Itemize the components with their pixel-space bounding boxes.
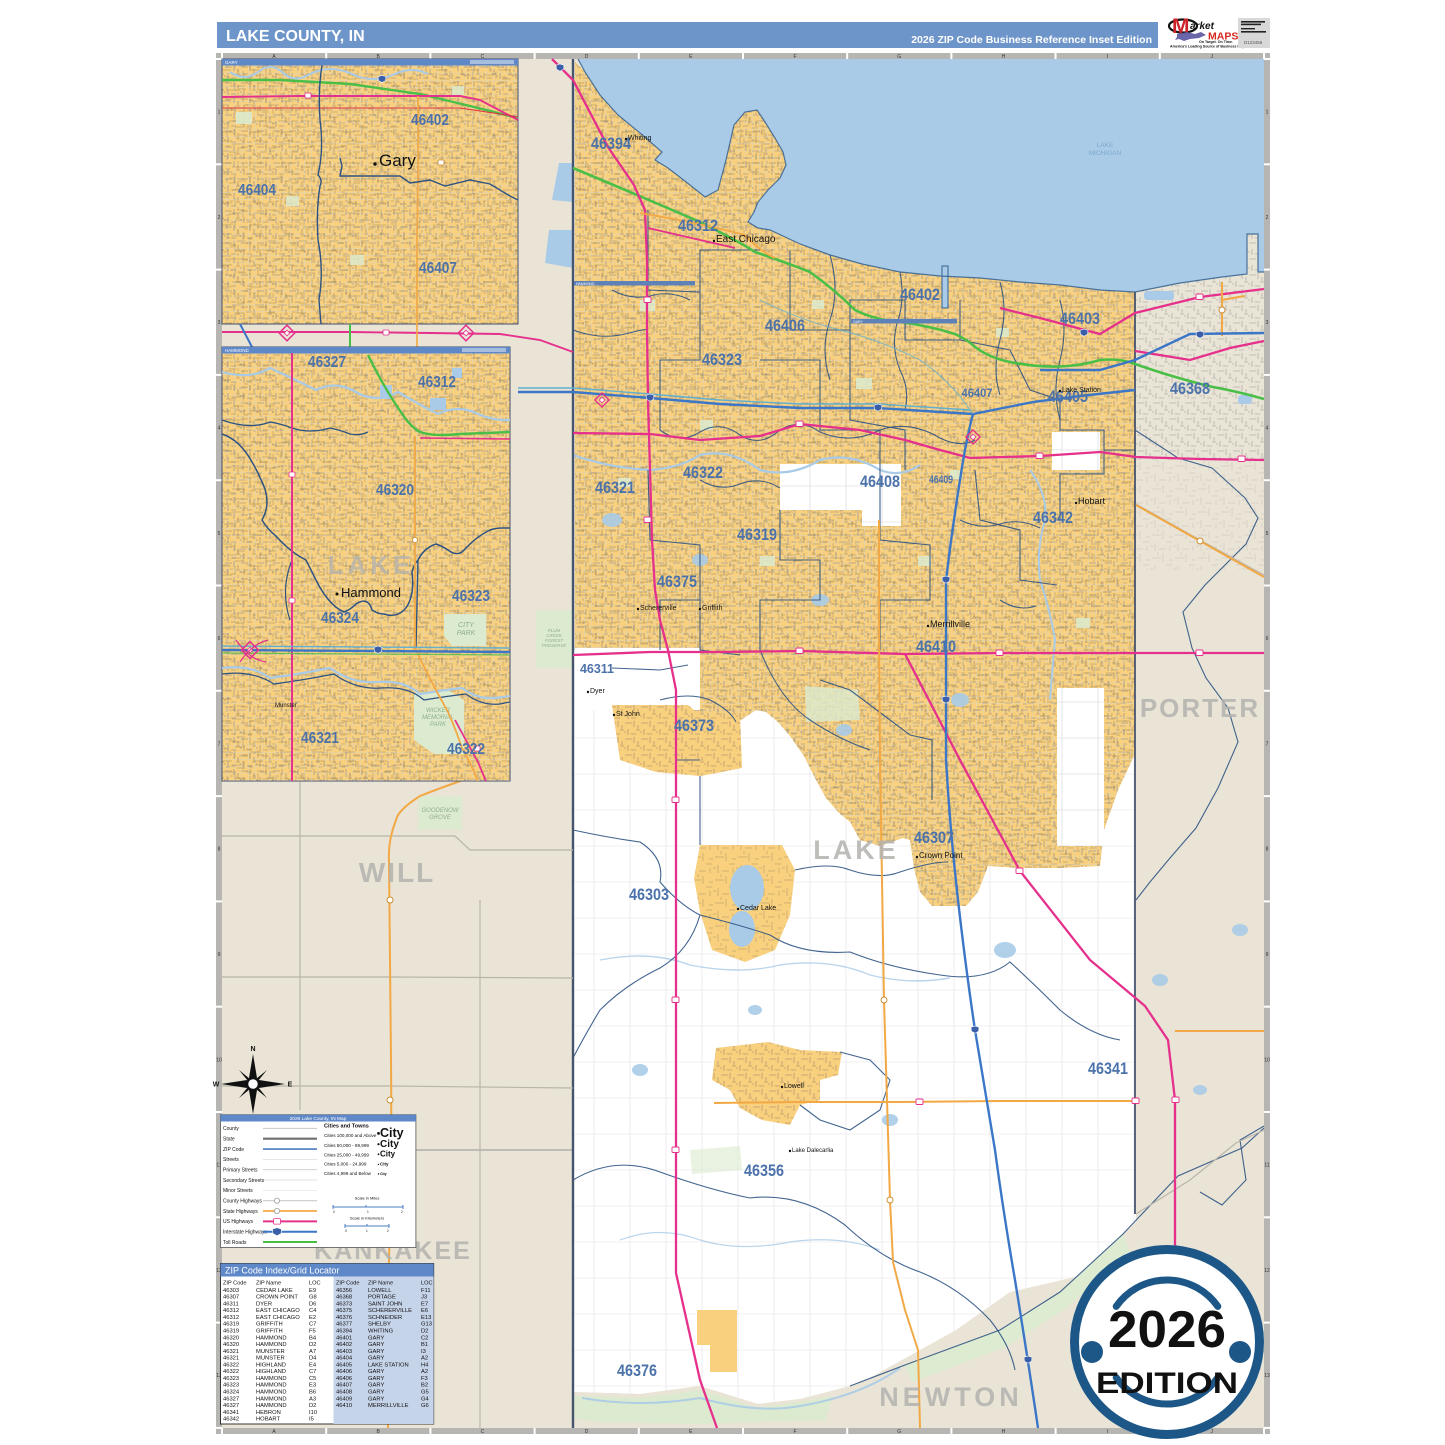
- svg-text:46377: 46377: [336, 1322, 352, 1328]
- svg-text:46320: 46320: [376, 482, 414, 499]
- svg-text:D6: D6: [309, 1301, 316, 1307]
- svg-text:46312: 46312: [223, 1315, 239, 1321]
- svg-text:Secondary Streets: Secondary Streets: [223, 1178, 265, 1184]
- svg-text:C2: C2: [421, 1335, 428, 1341]
- svg-text:46319: 46319: [737, 525, 777, 544]
- svg-text:46323: 46323: [452, 588, 490, 605]
- svg-text:City: City: [380, 1150, 396, 1159]
- svg-text:C4: C4: [309, 1308, 317, 1314]
- svg-text:Interstate Highways: Interstate Highways: [223, 1230, 267, 1236]
- svg-text:B1: B1: [421, 1342, 428, 1348]
- svg-text:City: City: [380, 1172, 387, 1176]
- svg-text:H4: H4: [421, 1362, 429, 1368]
- svg-text:12: 12: [1264, 1268, 1270, 1274]
- svg-text:1: 1: [218, 110, 221, 116]
- svg-text:2026 Lake County, IN Map: 2026 Lake County, IN Map: [290, 1116, 347, 1122]
- svg-text:LAKE STATION: LAKE STATION: [368, 1362, 409, 1368]
- svg-text:H: H: [1002, 54, 1006, 60]
- svg-text:46406: 46406: [336, 1369, 352, 1375]
- svg-text:D: D: [585, 1429, 589, 1435]
- svg-text:B2: B2: [421, 1383, 428, 1389]
- svg-text:I3: I3: [421, 1349, 426, 1355]
- svg-text:C7: C7: [309, 1369, 316, 1375]
- svg-text:46368: 46368: [336, 1295, 352, 1301]
- svg-text:1: 1: [367, 1210, 369, 1214]
- svg-text:2: 2: [401, 1210, 403, 1214]
- svg-text:WILL: WILL: [359, 857, 435, 888]
- svg-text:GARY: GARY: [225, 60, 238, 65]
- svg-text:2026 ZIP Code Business Referen: 2026 ZIP Code Business Reference Inset E…: [911, 34, 1152, 46]
- svg-text:GARY: GARY: [368, 1356, 384, 1362]
- svg-text:MICHIGAN: MICHIGAN: [1089, 150, 1122, 157]
- svg-text:46410: 46410: [916, 637, 956, 656]
- svg-text:America's Leading Source of Bu: America's Leading Source of Business Map…: [1170, 45, 1247, 49]
- svg-text:GARY: GARY: [368, 1390, 384, 1396]
- svg-text:46394: 46394: [336, 1329, 353, 1335]
- svg-text:46312: 46312: [223, 1308, 239, 1314]
- svg-text:LOC: LOC: [421, 1281, 433, 1287]
- svg-text:G13: G13: [421, 1322, 432, 1328]
- svg-text:E4: E4: [309, 1362, 317, 1368]
- svg-text:46324: 46324: [223, 1390, 240, 1396]
- svg-text:CEDAR LAKE: CEDAR LAKE: [256, 1288, 293, 1294]
- svg-text:US Highways: US Highways: [223, 1219, 254, 1225]
- svg-text:County: County: [223, 1126, 239, 1132]
- svg-text:City: City: [380, 1126, 404, 1140]
- svg-text:Lowell: Lowell: [784, 1083, 804, 1090]
- svg-text:On Target. On Time.: On Target. On Time.: [1199, 40, 1233, 44]
- svg-text:46327: 46327: [223, 1403, 239, 1409]
- svg-text:46394: 46394: [591, 134, 631, 153]
- svg-text:HAMMOND: HAMMOND: [256, 1396, 287, 1402]
- svg-text:46406: 46406: [336, 1376, 352, 1382]
- svg-text:4: 4: [218, 426, 221, 432]
- svg-text:2: 2: [387, 1229, 389, 1233]
- svg-text:EAST CHICAGO: EAST CHICAGO: [256, 1315, 300, 1321]
- svg-text:HAMMOND: HAMMOND: [256, 1376, 287, 1382]
- svg-text:I5: I5: [309, 1417, 314, 1423]
- svg-text:LAKE: LAKE: [1097, 142, 1114, 149]
- svg-text:I: I: [1107, 54, 1108, 60]
- svg-text:GRIFFITH: GRIFFITH: [256, 1329, 283, 1335]
- svg-text:46408: 46408: [860, 472, 900, 491]
- svg-text:46312: 46312: [418, 374, 456, 391]
- svg-text:EAST CHICAGO: EAST CHICAGO: [256, 1308, 300, 1314]
- svg-text:46376: 46376: [336, 1315, 352, 1321]
- svg-text:6: 6: [1266, 636, 1269, 642]
- svg-text:ZIP Name: ZIP Name: [368, 1281, 393, 1287]
- svg-text:10: 10: [216, 1057, 222, 1063]
- svg-text:Crown Point: Crown Point: [919, 851, 963, 860]
- svg-text:11: 11: [1264, 1163, 1269, 1169]
- svg-text:LAKE COUNTY, IN: LAKE COUNTY, IN: [226, 28, 365, 45]
- svg-text:LAKE: LAKE: [328, 550, 415, 580]
- svg-text:D2: D2: [309, 1403, 316, 1409]
- svg-text:J3: J3: [421, 1295, 427, 1301]
- svg-text:HOBART: HOBART: [256, 1417, 281, 1423]
- svg-text:46341: 46341: [1088, 1059, 1128, 1078]
- svg-text:LAKE: LAKE: [813, 835, 899, 865]
- svg-text:46375: 46375: [657, 572, 697, 591]
- svg-text:SCHNEIDER: SCHNEIDER: [368, 1315, 402, 1321]
- svg-text:ZIP Code: ZIP Code: [336, 1281, 360, 1287]
- svg-text:C7: C7: [309, 1322, 316, 1328]
- svg-text:PARK: PARK: [457, 630, 476, 637]
- svg-text:B4: B4: [309, 1335, 317, 1341]
- svg-text:46368: 46368: [1170, 379, 1210, 398]
- svg-text:46407: 46407: [336, 1383, 352, 1389]
- svg-text:46322: 46322: [447, 741, 485, 758]
- svg-text:46321: 46321: [223, 1349, 239, 1355]
- svg-text:D2: D2: [421, 1329, 428, 1335]
- svg-text:46320: 46320: [223, 1342, 239, 1348]
- svg-text:46341: 46341: [223, 1410, 239, 1416]
- svg-text:Primary Streets: Primary Streets: [223, 1168, 258, 1174]
- svg-text:46404: 46404: [238, 182, 276, 199]
- svg-text:HAMMOND: HAMMOND: [256, 1403, 287, 1409]
- svg-text:Cities 25,000 - 49,999: Cities 25,000 - 49,999: [324, 1153, 369, 1158]
- svg-text:Toll Roads: Toll Roads: [223, 1240, 247, 1246]
- svg-text:10: 10: [1264, 1057, 1270, 1063]
- svg-text:2026: 2026: [1108, 1301, 1226, 1359]
- svg-text:SCHERERVILLE: SCHERERVILLE: [368, 1308, 412, 1314]
- svg-text:N: N: [250, 1046, 255, 1053]
- svg-text:G: G: [897, 54, 901, 60]
- svg-text:HIGHLAND: HIGHLAND: [256, 1369, 286, 1375]
- svg-text:3: 3: [218, 320, 221, 326]
- svg-text:Dyer: Dyer: [590, 688, 605, 695]
- svg-text:D4: D4: [309, 1356, 317, 1362]
- svg-text:LOC: LOC: [309, 1281, 321, 1287]
- svg-text:E3: E3: [309, 1383, 316, 1389]
- svg-text:ZIP Name: ZIP Name: [256, 1281, 281, 1287]
- svg-text:Cities 100,000 and Above: Cities 100,000 and Above: [324, 1133, 377, 1138]
- svg-text:G8: G8: [309, 1295, 317, 1301]
- svg-text:Lake Dalecarlia: Lake Dalecarlia: [792, 1148, 834, 1154]
- svg-text:PRESERVE: PRESERVE: [542, 643, 567, 648]
- svg-text:D: D: [585, 54, 589, 60]
- svg-text:I10: I10: [309, 1410, 317, 1416]
- svg-text:Lake Station: Lake Station: [1062, 387, 1101, 394]
- svg-text:PORTER: PORTER: [1140, 693, 1260, 723]
- svg-text:F3: F3: [421, 1376, 428, 1382]
- svg-text:G: G: [897, 1429, 901, 1435]
- svg-text:46356: 46356: [744, 1161, 784, 1180]
- svg-text:A2: A2: [421, 1369, 428, 1375]
- svg-text:HAMMOND: HAMMOND: [256, 1383, 287, 1389]
- svg-text:F: F: [793, 1429, 796, 1435]
- svg-text:1: 1: [1266, 110, 1269, 116]
- svg-text:ZIP Code: ZIP Code: [223, 1147, 244, 1153]
- svg-text:HIGHLAND: HIGHLAND: [256, 1362, 286, 1368]
- svg-text:PARK: PARK: [430, 722, 447, 728]
- svg-text:GARY: GARY: [853, 320, 864, 324]
- svg-text:EDITION: EDITION: [1096, 1367, 1238, 1400]
- svg-text:SHELBY: SHELBY: [368, 1322, 391, 1328]
- svg-text:Hobart: Hobart: [1078, 496, 1106, 506]
- svg-text:GARY: GARY: [368, 1342, 384, 1348]
- svg-text:46409: 46409: [929, 474, 953, 486]
- svg-text:F5: F5: [309, 1329, 316, 1335]
- svg-text:WHITING: WHITING: [368, 1329, 394, 1335]
- svg-text:46373: 46373: [674, 716, 714, 735]
- svg-text:Merrillville: Merrillville: [930, 619, 970, 629]
- svg-text:46402: 46402: [411, 112, 449, 129]
- svg-text:GARY: GARY: [368, 1349, 384, 1355]
- svg-text:46321: 46321: [595, 478, 635, 497]
- svg-text:46403: 46403: [1060, 309, 1100, 328]
- svg-text:46322: 46322: [223, 1362, 239, 1368]
- svg-text:46342: 46342: [1033, 508, 1073, 527]
- svg-text:Cities 5,000 - 24,999: Cities 5,000 - 24,999: [324, 1162, 367, 1167]
- svg-text:H: H: [1002, 1429, 1006, 1435]
- svg-text:9: 9: [218, 952, 221, 958]
- svg-text:I: I: [1107, 1429, 1108, 1435]
- svg-text:E2: E2: [309, 1315, 316, 1321]
- svg-text:G5: G5: [421, 1390, 429, 1396]
- svg-text:46323: 46323: [702, 350, 742, 369]
- svg-text:Cedar Lake: Cedar Lake: [740, 905, 776, 912]
- svg-text:46403: 46403: [336, 1349, 352, 1355]
- svg-text:D2: D2: [309, 1342, 316, 1348]
- svg-text:6: 6: [218, 636, 221, 642]
- svg-text:City: City: [380, 1162, 389, 1167]
- svg-text:46321: 46321: [301, 730, 339, 747]
- svg-text:0: 0: [333, 1210, 335, 1214]
- svg-text:G4: G4: [421, 1396, 430, 1402]
- svg-text:SAINT JOHN: SAINT JOHN: [368, 1301, 402, 1307]
- svg-text:CITY: CITY: [458, 622, 475, 629]
- svg-text:46402: 46402: [900, 285, 940, 304]
- svg-text:HEBRON: HEBRON: [256, 1410, 281, 1416]
- svg-text:46323: 46323: [223, 1376, 239, 1382]
- svg-text:46327: 46327: [308, 354, 346, 371]
- svg-text:46312: 46312: [678, 216, 718, 235]
- svg-text:Griffith: Griffith: [702, 605, 723, 612]
- svg-text:7: 7: [1266, 741, 1269, 747]
- svg-text:City: City: [380, 1139, 399, 1150]
- svg-text:County Highways: County Highways: [223, 1199, 262, 1205]
- svg-text:State Highways: State Highways: [223, 1209, 258, 1215]
- svg-text:GARY: GARY: [368, 1396, 384, 1402]
- svg-text:46376: 46376: [617, 1361, 657, 1380]
- svg-text:GARY: GARY: [368, 1376, 384, 1382]
- svg-text:E13: E13: [421, 1315, 431, 1321]
- svg-text:HAMMOND: HAMMOND: [576, 282, 595, 286]
- svg-text:5: 5: [218, 531, 221, 537]
- svg-text:46311: 46311: [580, 661, 614, 676]
- svg-text:46307: 46307: [914, 828, 954, 847]
- svg-text:0: 0: [345, 1229, 347, 1233]
- svg-text:1: 1: [366, 1229, 368, 1233]
- svg-text:ZIP Code: ZIP Code: [223, 1281, 247, 1287]
- svg-text:A7: A7: [309, 1349, 316, 1355]
- svg-text:E9: E9: [309, 1288, 316, 1294]
- svg-text:Cities 4,999 and Below: Cities 4,999 and Below: [324, 1171, 372, 1176]
- svg-text:46409: 46409: [336, 1396, 352, 1402]
- svg-text:4: 4: [1266, 426, 1269, 432]
- svg-text:9: 9: [1266, 952, 1269, 958]
- svg-text:46375: 46375: [336, 1308, 352, 1314]
- svg-text:GARY: GARY: [368, 1369, 384, 1375]
- svg-text:W: W: [213, 1082, 220, 1089]
- svg-text:A2: A2: [421, 1356, 428, 1362]
- svg-text:State: State: [223, 1137, 235, 1143]
- svg-text:DYER: DYER: [256, 1301, 272, 1307]
- svg-text:46307: 46307: [223, 1295, 239, 1301]
- svg-text:46410: 46410: [336, 1403, 352, 1409]
- svg-text:GARY: GARY: [368, 1335, 384, 1341]
- svg-text:GROVE: GROVE: [429, 815, 452, 821]
- svg-text:GOODENOW: GOODENOW: [422, 808, 460, 814]
- svg-text:D123456: D123456: [1244, 40, 1263, 45]
- svg-text:MUNSTER: MUNSTER: [256, 1356, 285, 1362]
- svg-text:46405: 46405: [336, 1362, 352, 1368]
- svg-text:Munster: Munster: [275, 703, 297, 709]
- svg-text:Streets: Streets: [223, 1157, 239, 1163]
- svg-text:8: 8: [218, 847, 221, 853]
- svg-text:3: 3: [1266, 320, 1269, 326]
- svg-text:MUNSTER: MUNSTER: [256, 1349, 285, 1355]
- svg-text:46324: 46324: [321, 610, 359, 627]
- svg-text:G6: G6: [421, 1403, 429, 1409]
- svg-text:GRIFFITH: GRIFFITH: [256, 1322, 283, 1328]
- svg-text:MERRILLVILLE: MERRILLVILLE: [368, 1403, 409, 1409]
- svg-text:46321: 46321: [223, 1356, 239, 1362]
- svg-text:46323: 46323: [223, 1383, 239, 1389]
- svg-text:13: 13: [1264, 1373, 1270, 1379]
- svg-text:B6: B6: [309, 1390, 316, 1396]
- svg-text:HAMMOND: HAMMOND: [256, 1342, 287, 1348]
- svg-text:46404: 46404: [336, 1356, 353, 1362]
- svg-text:46319: 46319: [223, 1322, 239, 1328]
- svg-text:GARY: GARY: [368, 1383, 384, 1389]
- svg-text:5: 5: [1266, 531, 1269, 537]
- svg-text:Hammond: Hammond: [341, 585, 401, 600]
- svg-text:HAMMOND: HAMMOND: [256, 1390, 287, 1396]
- svg-text:2: 2: [1266, 215, 1269, 221]
- svg-text:46373: 46373: [336, 1301, 352, 1307]
- svg-text:46327: 46327: [223, 1396, 239, 1402]
- svg-text:46322: 46322: [683, 463, 723, 482]
- svg-text:8: 8: [1266, 847, 1269, 853]
- svg-text:Scale in Miles: Scale in Miles: [355, 1196, 380, 1201]
- svg-text:Cities and Towns: Cities and Towns: [324, 1124, 369, 1130]
- svg-text:46407: 46407: [419, 260, 457, 277]
- svg-text:East Chicago: East Chicago: [716, 234, 776, 245]
- svg-text:46408: 46408: [336, 1390, 352, 1396]
- svg-text:46322: 46322: [223, 1369, 239, 1375]
- svg-text:NEWTON: NEWTON: [879, 1382, 1023, 1412]
- svg-text:C: C: [481, 1429, 485, 1435]
- svg-text:F: F: [793, 54, 796, 60]
- svg-text:LOWELL: LOWELL: [368, 1288, 392, 1294]
- svg-text:46303: 46303: [629, 885, 669, 904]
- svg-text:46320: 46320: [223, 1335, 239, 1341]
- svg-text:HAMMOND: HAMMOND: [256, 1335, 287, 1341]
- svg-text:46407: 46407: [962, 386, 993, 400]
- svg-text:E: E: [288, 1082, 293, 1089]
- svg-text:C5: C5: [309, 1376, 316, 1382]
- svg-text:Whiting: Whiting: [628, 135, 651, 142]
- svg-text:ZIP Code Index/Grid Locator: ZIP Code Index/Grid Locator: [225, 1266, 339, 1276]
- svg-text:St John: St John: [616, 711, 640, 718]
- svg-text:Gary: Gary: [379, 151, 416, 170]
- svg-text:2: 2: [218, 215, 221, 221]
- svg-text:E7: E7: [421, 1301, 428, 1307]
- svg-text:HAMMOND: HAMMOND: [225, 348, 249, 353]
- svg-text:F11: F11: [421, 1288, 431, 1294]
- svg-text:46303: 46303: [223, 1288, 239, 1294]
- svg-text:46402: 46402: [336, 1342, 352, 1348]
- svg-text:PORTAGE: PORTAGE: [368, 1295, 396, 1301]
- svg-text:A3: A3: [309, 1396, 316, 1402]
- svg-text:Schererville: Schererville: [640, 605, 677, 612]
- svg-text:46342: 46342: [223, 1417, 239, 1423]
- svg-text:46406: 46406: [765, 316, 805, 335]
- svg-text:Scale in Kilometers: Scale in Kilometers: [350, 1216, 384, 1221]
- svg-text:E6: E6: [421, 1308, 428, 1314]
- svg-text:Minor Streets: Minor Streets: [223, 1188, 253, 1194]
- svg-text:Cities 50,000 - 99,999: Cities 50,000 - 99,999: [324, 1143, 369, 1148]
- svg-text:46356: 46356: [336, 1288, 352, 1294]
- svg-text:46319: 46319: [223, 1329, 239, 1335]
- svg-text:CROWN POINT: CROWN POINT: [256, 1295, 298, 1301]
- svg-text:46401: 46401: [336, 1335, 352, 1341]
- svg-text:7: 7: [218, 741, 221, 747]
- svg-text:46311: 46311: [223, 1301, 239, 1307]
